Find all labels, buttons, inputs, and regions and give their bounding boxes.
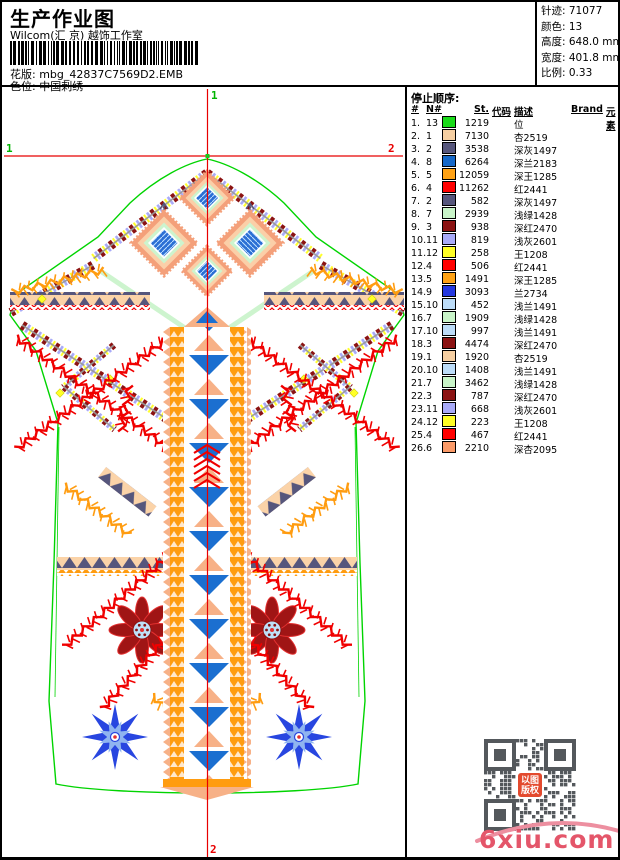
- cell-n: 3: [426, 222, 442, 233]
- cell-desc: 兰2734: [514, 286, 571, 300]
- cell-idx: 4.: [411, 157, 426, 168]
- cell-n: 11: [426, 404, 442, 415]
- cell-idx: 16.: [411, 313, 426, 324]
- cell-st: 1408: [459, 365, 492, 376]
- production-worksheet: 生产作业图 Wilcom(汇 京) 越饰工作室 花版: mbg_42837C75…: [0, 0, 620, 860]
- cell-idx: 24.: [411, 417, 426, 428]
- cell-idx: 13.: [411, 274, 426, 285]
- cell-st: 452: [459, 300, 492, 311]
- cell-idx: 14.: [411, 287, 426, 298]
- cell-st: 258: [459, 248, 492, 259]
- cell-st: 2210: [459, 443, 492, 454]
- cell-st: 7130: [459, 131, 492, 142]
- cell-n: 2: [426, 196, 442, 207]
- cell-n: 9: [426, 287, 442, 298]
- cell-st: 2939: [459, 209, 492, 220]
- cell-desc: 浅灰2601: [514, 403, 571, 417]
- cell-idx: 9.: [411, 222, 426, 233]
- cell-idx: 6.: [411, 183, 426, 194]
- cell-idx: 5.: [411, 170, 426, 181]
- cell-desc: 王1208: [514, 416, 571, 430]
- cell-st: 997: [459, 326, 492, 337]
- cell-st: 1219: [459, 118, 492, 129]
- cell-st: 223: [459, 417, 492, 428]
- cell-st: 506: [459, 261, 492, 272]
- cell-desc: 红2441: [514, 260, 571, 274]
- cell-n: 5: [426, 170, 442, 181]
- cell-st: 582: [459, 196, 492, 207]
- info-row: 针迹: 71077: [541, 4, 620, 20]
- cell-desc: 浅绿1428: [514, 312, 571, 326]
- info-row: 颜色: 13: [541, 20, 620, 36]
- cell-desc: 深红2470: [514, 221, 571, 235]
- cell-desc: 深王1285: [514, 273, 571, 287]
- barcode: [10, 41, 234, 65]
- svg-text:以图: 以图: [521, 775, 539, 786]
- cell-desc: 深红2470: [514, 338, 571, 352]
- marker-left: 1: [6, 142, 13, 155]
- stop-sequence-panel: 停止顺序: # N# St. 代码 描述 Brand 元素 1.131219位2…: [405, 87, 620, 857]
- marker-bottom: 2: [210, 843, 217, 856]
- color-sequence-rows: 1.131219位2.17130杏25193.23538深灰14974.8626…: [411, 117, 620, 455]
- marker-right: 2: [388, 142, 395, 155]
- cell-st: 1909: [459, 313, 492, 324]
- watermark-site: 6xiu.com: [479, 825, 614, 854]
- cell-desc: 浅兰1491: [514, 364, 571, 378]
- snowflake-star: [82, 704, 148, 770]
- cell-st: 668: [459, 404, 492, 415]
- cell-idx: 19.: [411, 352, 426, 363]
- thread-color-swatch: [442, 441, 459, 456]
- info-row: 高度: 648.0 mm: [541, 35, 620, 51]
- design-preview: 1 1 2 2: [2, 87, 405, 859]
- cell-n: 4: [426, 430, 442, 441]
- cell-n: 10: [426, 326, 442, 337]
- cell-idx: 21.: [411, 378, 426, 389]
- cell-n: 5: [426, 274, 442, 285]
- cell-idx: 12.: [411, 261, 426, 272]
- cell-desc: 浅绿1428: [514, 377, 571, 391]
- cell-st: 6264: [459, 157, 492, 168]
- cell-n: 4: [426, 183, 442, 194]
- cell-desc: 深灰1497: [514, 195, 571, 209]
- info-row: 宽度: 401.8 mm: [541, 51, 620, 67]
- cell-idx: 11.: [411, 248, 426, 259]
- cell-idx: 22.: [411, 391, 426, 402]
- cell-desc: 杏2519: [514, 130, 571, 144]
- cell-desc: 深红2470: [514, 390, 571, 404]
- cell-n: 10: [426, 365, 442, 376]
- cell-n: 7: [426, 313, 442, 324]
- header: 生产作业图 Wilcom(汇 京) 越饰工作室 花版: mbg_42837C75…: [2, 2, 618, 87]
- cell-idx: 8.: [411, 209, 426, 220]
- cell-st: 467: [459, 430, 492, 441]
- marker-top: 1: [211, 89, 218, 102]
- cell-n: 4: [426, 261, 442, 272]
- cell-n: 1: [426, 352, 442, 363]
- cell-n: 13: [426, 118, 442, 129]
- cell-n: 12: [426, 248, 442, 259]
- cell-desc: 浅灰2601: [514, 234, 571, 248]
- cell-desc: 浅兰1491: [514, 299, 571, 313]
- cell-desc: 红2441: [514, 182, 571, 196]
- cell-st: 11262: [459, 183, 492, 194]
- cell-idx: 1.: [411, 118, 426, 129]
- cell-idx: 26.: [411, 443, 426, 454]
- cell-desc: 深杏2095: [514, 442, 571, 456]
- cell-st: 1920: [459, 352, 492, 363]
- cell-desc: 浅兰1491: [514, 325, 571, 339]
- info-row: 比例: 0.33: [541, 66, 620, 82]
- cell-idx: 18.: [411, 339, 426, 350]
- cell-n: 10: [426, 300, 442, 311]
- cell-n: 11: [426, 235, 442, 246]
- cell-n: 12: [426, 417, 442, 428]
- cell-idx: 20.: [411, 365, 426, 376]
- cell-n: 7: [426, 378, 442, 389]
- cell-desc: 红2441: [514, 429, 571, 443]
- cell-st: 3093: [459, 287, 492, 298]
- cell-idx: 2.: [411, 131, 426, 142]
- cell-n: 2: [426, 144, 442, 155]
- cell-idx: 25.: [411, 430, 426, 441]
- cell-idx: 17.: [411, 326, 426, 337]
- cell-st: 938: [459, 222, 492, 233]
- cell-idx: 15.: [411, 300, 426, 311]
- cell-n: 3: [426, 391, 442, 402]
- cell-idx: 10.: [411, 235, 426, 246]
- cell-st: 819: [459, 235, 492, 246]
- table-row: 26.62210深杏2095: [411, 442, 620, 455]
- cell-desc: 杏2519: [514, 351, 571, 365]
- cell-n: 1: [426, 131, 442, 142]
- svg-text:版权: 版权: [520, 784, 540, 796]
- cell-idx: 23.: [411, 404, 426, 415]
- cell-desc: 浅绿1428: [514, 208, 571, 222]
- cell-n: 8: [426, 157, 442, 168]
- cell-st: 787: [459, 391, 492, 402]
- cell-idx: 3.: [411, 144, 426, 155]
- cell-n: 6: [426, 443, 442, 454]
- cell-n: 7: [426, 209, 442, 220]
- cell-st: 12059: [459, 170, 492, 181]
- design-info-panel: 针迹: 71077颜色: 13高度: 648.0 mm宽度: 401.8 mm比…: [535, 2, 620, 87]
- cell-st: 3538: [459, 144, 492, 155]
- cell-desc: 深王1285: [514, 169, 571, 183]
- cell-n: 3: [426, 339, 442, 350]
- cell-desc: 位: [514, 117, 571, 131]
- cell-st: 1491: [459, 274, 492, 285]
- cell-st: 4474: [459, 339, 492, 350]
- cell-st: 3462: [459, 378, 492, 389]
- cell-idx: 7.: [411, 196, 426, 207]
- cell-desc: 深灰1497: [514, 143, 571, 157]
- cell-desc: 王1208: [514, 247, 571, 261]
- cell-desc: 深兰2183: [514, 156, 571, 170]
